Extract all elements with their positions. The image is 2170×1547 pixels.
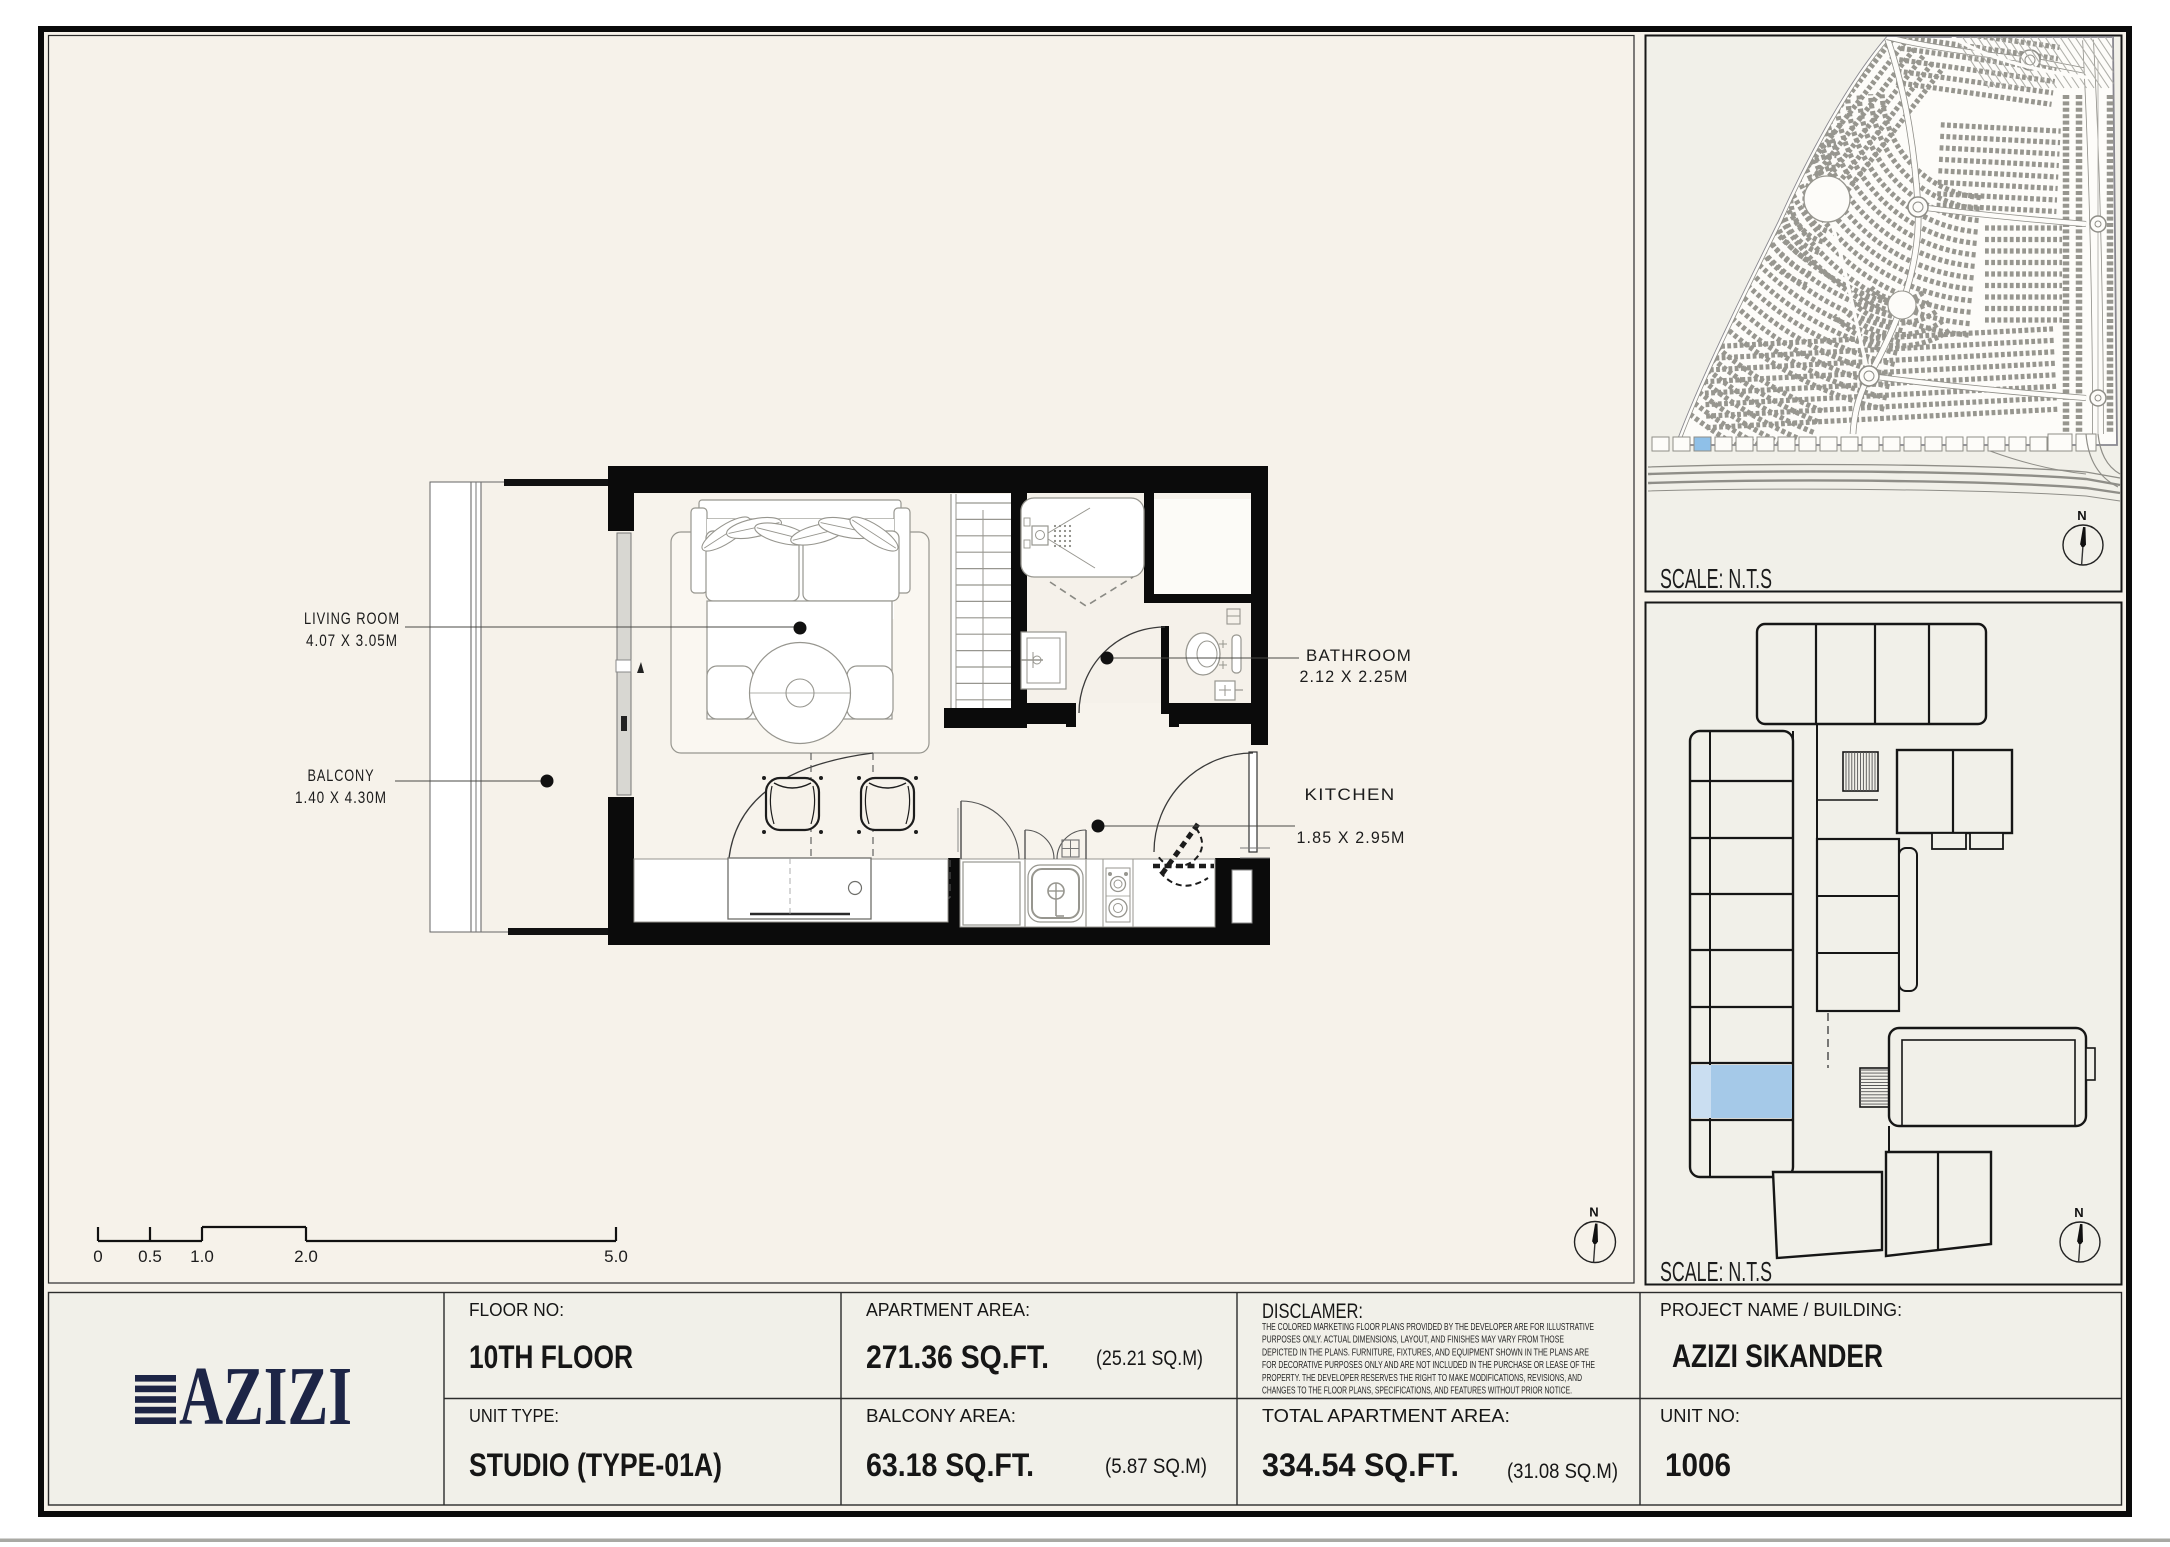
svg-text:LIVING ROOM: LIVING ROOM <box>304 609 400 628</box>
svg-text:5.0: 5.0 <box>604 1247 628 1266</box>
svg-text:BALCONY: BALCONY <box>308 766 375 785</box>
svg-text:334.54 SQ.FT.: 334.54 SQ.FT. <box>1262 1447 1459 1483</box>
svg-text:DISCLAMER:: DISCLAMER: <box>1262 1300 1363 1323</box>
svg-text:BATHROOM: BATHROOM <box>1306 646 1412 665</box>
svg-text:1006: 1006 <box>1665 1447 1731 1483</box>
svg-text:1.0: 1.0 <box>190 1247 214 1266</box>
svg-text:2.0: 2.0 <box>294 1247 318 1266</box>
svg-text:N: N <box>2077 508 2086 523</box>
svg-text:KITCHEN: KITCHEN <box>1305 785 1396 804</box>
svg-text:0.5: 0.5 <box>138 1247 162 1266</box>
svg-text:63.18 SQ.FT.: 63.18 SQ.FT. <box>866 1447 1034 1483</box>
svg-text:271.36 SQ.FT.: 271.36 SQ.FT. <box>866 1339 1049 1375</box>
svg-text:PROPERTY. THE DEVELOPER RESERV: PROPERTY. THE DEVELOPER RESERVES THE RIG… <box>1262 1372 1582 1384</box>
svg-text:PROJECT NAME / BUILDING:: PROJECT NAME / BUILDING: <box>1660 1300 1902 1320</box>
svg-text:UNIT NO:: UNIT NO: <box>1660 1406 1740 1426</box>
svg-text:AZIZI SIKANDER: AZIZI SIKANDER <box>1672 1338 1883 1374</box>
svg-text:0: 0 <box>93 1247 102 1266</box>
svg-text:4.07 X 3.05M: 4.07 X 3.05M <box>306 631 398 650</box>
svg-text:10TH FLOOR: 10TH FLOOR <box>469 1339 633 1375</box>
svg-text:TOTAL APARTMENT AREA:: TOTAL APARTMENT AREA: <box>1262 1406 1510 1426</box>
svg-text:AZIZI: AZIZI <box>179 1350 352 1443</box>
svg-text:SCALE: N.T.S: SCALE: N.T.S <box>1660 1256 1772 1287</box>
svg-text:PURPOSES ONLY. ACTUAL DIMENSIO: PURPOSES ONLY. ACTUAL DIMENSIONS, LAYOUT… <box>1262 1334 1564 1346</box>
svg-text:2.12 X 2.25M: 2.12 X 2.25M <box>1300 667 1409 686</box>
svg-text:(5.87 SQ.M): (5.87 SQ.M) <box>1105 1455 1207 1478</box>
svg-text:N: N <box>2074 1205 2083 1220</box>
svg-text:N: N <box>1589 1205 1598 1220</box>
svg-text:1.85 X 2.95M: 1.85 X 2.95M <box>1297 828 1406 847</box>
svg-text:(25.21 SQ.M): (25.21 SQ.M) <box>1096 1347 1203 1370</box>
svg-text:FLOOR NO:: FLOOR NO: <box>469 1300 564 1320</box>
svg-text:BALCONY AREA:: BALCONY AREA: <box>866 1406 1016 1426</box>
svg-text:(31.08 SQ.M): (31.08 SQ.M) <box>1507 1460 1618 1483</box>
svg-text:STUDIO (TYPE-01A): STUDIO (TYPE-01A) <box>469 1447 722 1483</box>
svg-text:1.40 X 4.30M: 1.40 X 4.30M <box>295 788 387 807</box>
svg-text:FOR DECORATIVE PURPOSES ONLY A: FOR DECORATIVE PURPOSES ONLY AND ARE NOT… <box>1262 1359 1595 1371</box>
svg-text:UNIT TYPE:: UNIT TYPE: <box>469 1406 559 1426</box>
svg-text:APARTMENT AREA:: APARTMENT AREA: <box>866 1300 1030 1320</box>
svg-text:CHANGES TO THE FLOOR PLANS, SP: CHANGES TO THE FLOOR PLANS, SPECIFICATIO… <box>1262 1385 1572 1397</box>
svg-text:THE COLORED MARKETING FLOOR PL: THE COLORED MARKETING FLOOR PLANS PROVID… <box>1262 1321 1594 1333</box>
svg-text:SCALE: N.T.S: SCALE: N.T.S <box>1660 563 1772 594</box>
svg-text:DEPICTED IN THE PLANS. FURNITU: DEPICTED IN THE PLANS. FURNITURE, FIXTUR… <box>1262 1346 1589 1358</box>
